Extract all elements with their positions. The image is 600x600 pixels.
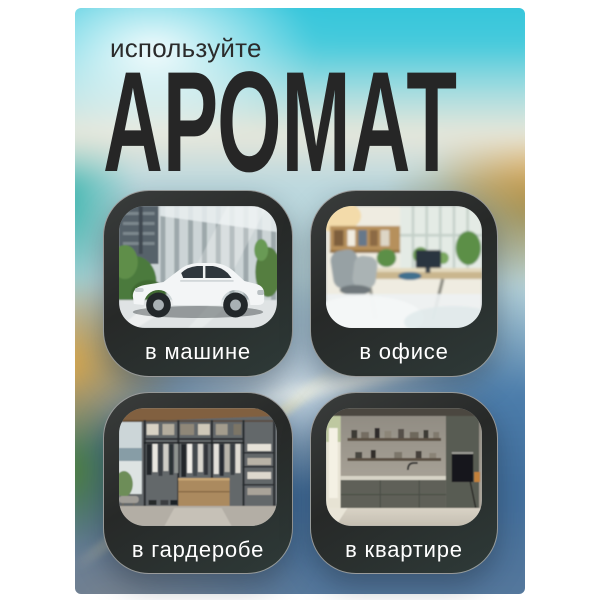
wardrobe-scene-bg bbox=[119, 408, 277, 526]
main-title: АРОМАТ bbox=[103, 66, 457, 180]
rug bbox=[164, 508, 231, 526]
card-office: в офисе bbox=[310, 190, 498, 377]
card-photo-car bbox=[119, 206, 277, 328]
window-light bbox=[326, 416, 341, 508]
office-scene-bg bbox=[326, 206, 482, 328]
tall-cabinet bbox=[446, 416, 480, 510]
desk-object bbox=[398, 272, 421, 280]
built-in-oven bbox=[452, 454, 473, 482]
ceiling-strip bbox=[326, 408, 482, 416]
eyebrow-text: используйте bbox=[110, 35, 262, 61]
car-scene bbox=[119, 206, 277, 328]
card-wardrobe: в гардеробе bbox=[103, 392, 293, 574]
card-label-car: в машине bbox=[119, 328, 277, 376]
kitchen-scene-bg bbox=[326, 408, 482, 526]
kitchen-scene bbox=[326, 408, 482, 526]
card-photo-office bbox=[326, 206, 482, 328]
card-label-wardrobe: в гардеробе bbox=[119, 526, 277, 573]
main-title-svg: АРОМАТ bbox=[102, 66, 462, 180]
side-window bbox=[119, 422, 142, 497]
bookshelf bbox=[330, 226, 400, 253]
floor bbox=[326, 508, 482, 526]
card-apartment: в квартире bbox=[310, 392, 498, 574]
card-label-apartment: в квартире bbox=[326, 526, 482, 573]
drawer-unit bbox=[178, 478, 229, 506]
card-photo-apartment bbox=[326, 408, 482, 526]
card-label-office: в офисе bbox=[326, 328, 482, 376]
shoes bbox=[149, 500, 178, 505]
office-scene bbox=[326, 206, 482, 328]
card-photo-wardrobe bbox=[119, 408, 277, 526]
wardrobe-scene bbox=[119, 408, 277, 526]
clothes-rail bbox=[144, 442, 245, 444]
base-cabinets bbox=[341, 480, 446, 510]
countertop bbox=[341, 476, 446, 480]
poster: используйте АРОМАТ bbox=[0, 0, 600, 600]
card-car: в машине bbox=[103, 190, 293, 377]
